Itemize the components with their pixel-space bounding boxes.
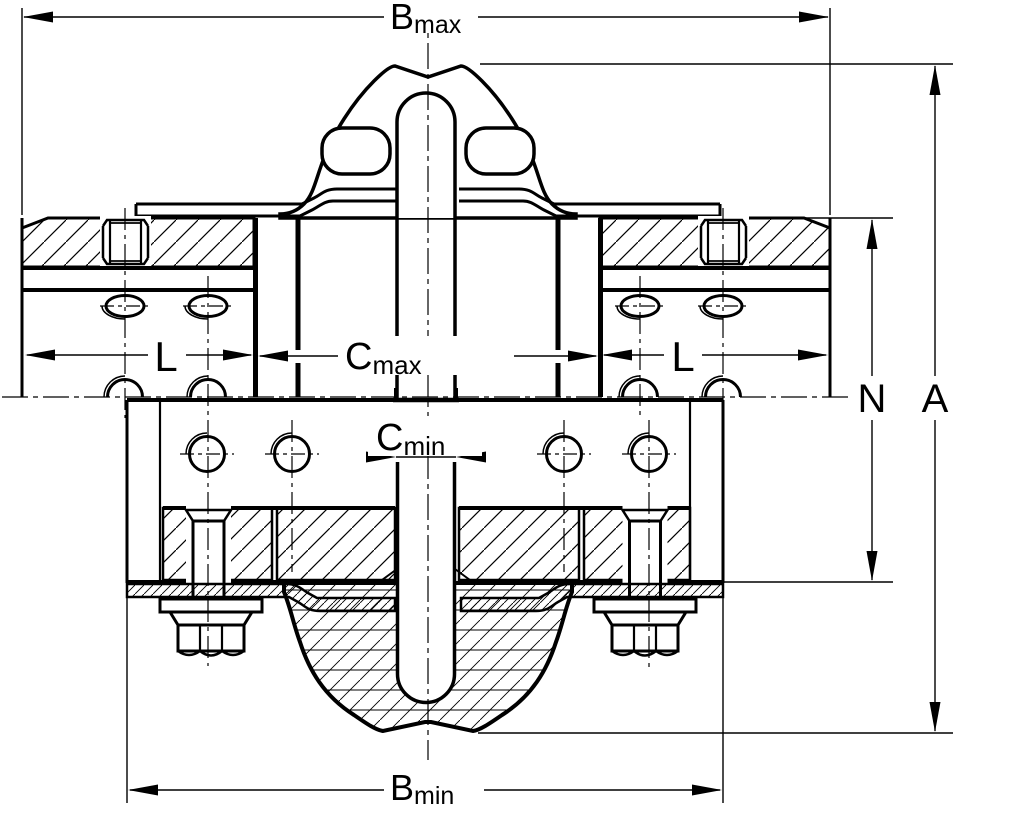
drawing-canvas: Bmax Cmax Cmin Bmin L L N A xyxy=(0,0,1020,828)
coupling-body xyxy=(22,66,830,731)
dim-n-label: N xyxy=(858,377,887,421)
arrowhead-left xyxy=(128,785,158,796)
washer xyxy=(594,599,696,612)
dim-a-label: A xyxy=(922,377,949,421)
dimension-l-right xyxy=(602,350,828,361)
tyre-cavity-right xyxy=(466,128,534,174)
nut-collar xyxy=(604,612,686,625)
dim-l-left-label: L xyxy=(154,333,177,380)
washer xyxy=(160,599,262,612)
arrowhead-right xyxy=(799,12,829,23)
arrowhead-left xyxy=(23,12,53,23)
nut-collar xyxy=(170,612,252,625)
hex-nut xyxy=(612,625,678,651)
tyre-slot-bottom-fill xyxy=(396,460,456,704)
tyre-slot-fill xyxy=(396,94,456,218)
dimension-l-left xyxy=(25,350,253,361)
arrowhead-right xyxy=(568,351,598,362)
hex-nut xyxy=(178,625,244,651)
arrowhead-right xyxy=(692,785,722,796)
dim-l-right-label: L xyxy=(671,333,694,380)
arrowhead-down xyxy=(930,702,941,732)
arrowhead-right xyxy=(798,350,828,361)
arrowhead-left xyxy=(258,351,288,362)
arrowhead-up xyxy=(867,219,878,249)
arrowhead-left xyxy=(25,350,55,361)
arrowhead-right xyxy=(223,350,253,361)
coupling-drawing: Bmax Cmax Cmin Bmin L L N A xyxy=(0,0,1020,828)
arrowhead-down xyxy=(867,551,878,581)
arrowhead-left xyxy=(602,350,632,361)
arrowhead-up xyxy=(930,65,941,95)
tyre-cavity-left xyxy=(322,128,390,174)
